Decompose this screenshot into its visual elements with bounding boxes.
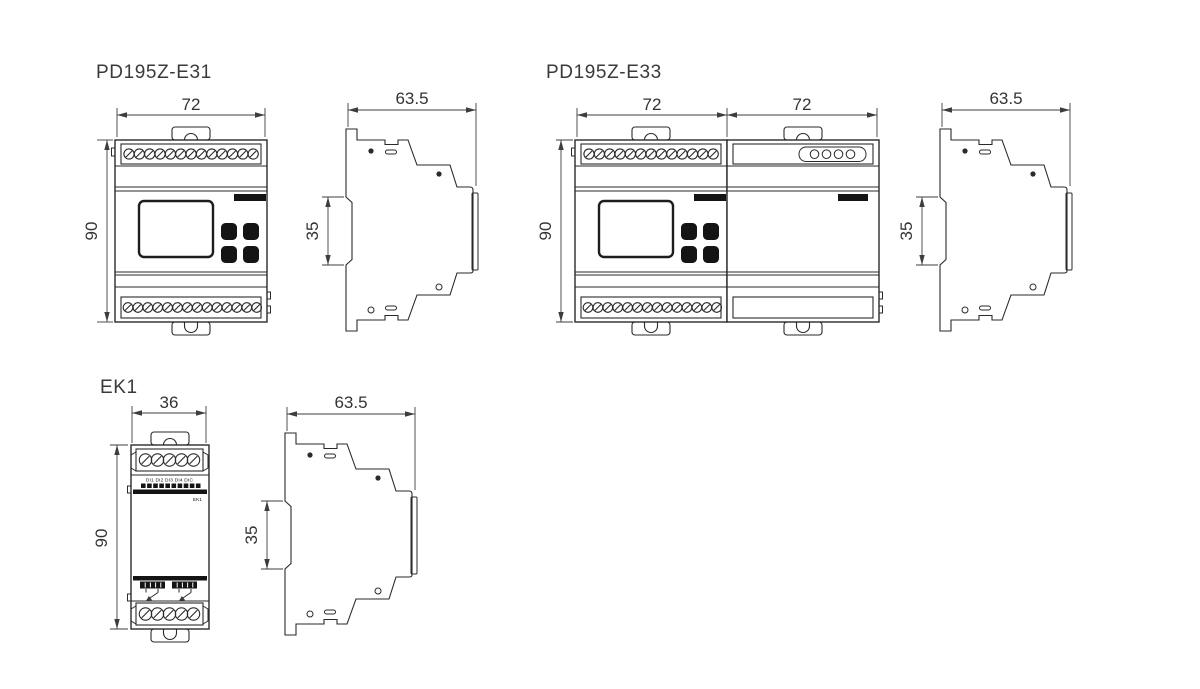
label-bar [838, 194, 868, 201]
technical-drawing-canvas: PD195Z-E31 72 90 63.5 35 PD195Z-E33 [0, 0, 1200, 689]
side-view: 63.5 35 [242, 393, 417, 635]
ek1-drawing: EK1 DI1 DI2 DI3 DI4 DIC EK1 [92, 377, 417, 642]
expansion-module-front [727, 127, 883, 335]
drawing-title: EK1 [100, 377, 138, 398]
input-terminal-labels: DI1 DI2 DI3 DI4 DIC [146, 478, 194, 484]
side-view: 63.5 35 [897, 89, 1072, 331]
drawing-title: PD195Z-E31 [96, 62, 212, 83]
dimension-rail: 35 [242, 526, 261, 545]
dimension-depth: 63.5 [395, 89, 428, 108]
dimension-height: 90 [536, 222, 555, 241]
model-label: EK1 [193, 497, 202, 503]
dimension-depth: 63.5 [334, 393, 367, 412]
side-view: 63.5 35 [303, 89, 478, 331]
label-bar [133, 490, 207, 495]
drawing-title: PD195Z-E33 [546, 62, 662, 83]
front-view: 72 72 90 [536, 95, 883, 335]
dimension-height: 90 [82, 222, 101, 241]
front-view: 72 90 [82, 95, 271, 335]
front-view: DI1 DI2 DI3 DI4 DIC EK1 [92, 393, 209, 642]
dimension-rail: 35 [897, 222, 916, 241]
pd195z-e33-drawing: PD195Z-E33 [536, 62, 1072, 335]
dimension-width: 36 [160, 393, 179, 412]
dimension-width-left: 72 [643, 95, 662, 114]
dimension-width: 72 [182, 95, 201, 114]
dimension-rail: 35 [303, 222, 322, 241]
drawing-sheet: PD195Z-E31 72 90 63.5 35 PD195Z-E33 [0, 0, 1200, 689]
module-body [727, 140, 879, 322]
dimension-depth: 63.5 [989, 89, 1022, 108]
pd195z-e31-drawing: PD195Z-E31 72 90 63.5 35 [82, 62, 478, 335]
dimension-width-right: 72 [793, 95, 812, 114]
label-bar-bottom [133, 576, 207, 581]
dimension-height: 90 [92, 529, 111, 548]
